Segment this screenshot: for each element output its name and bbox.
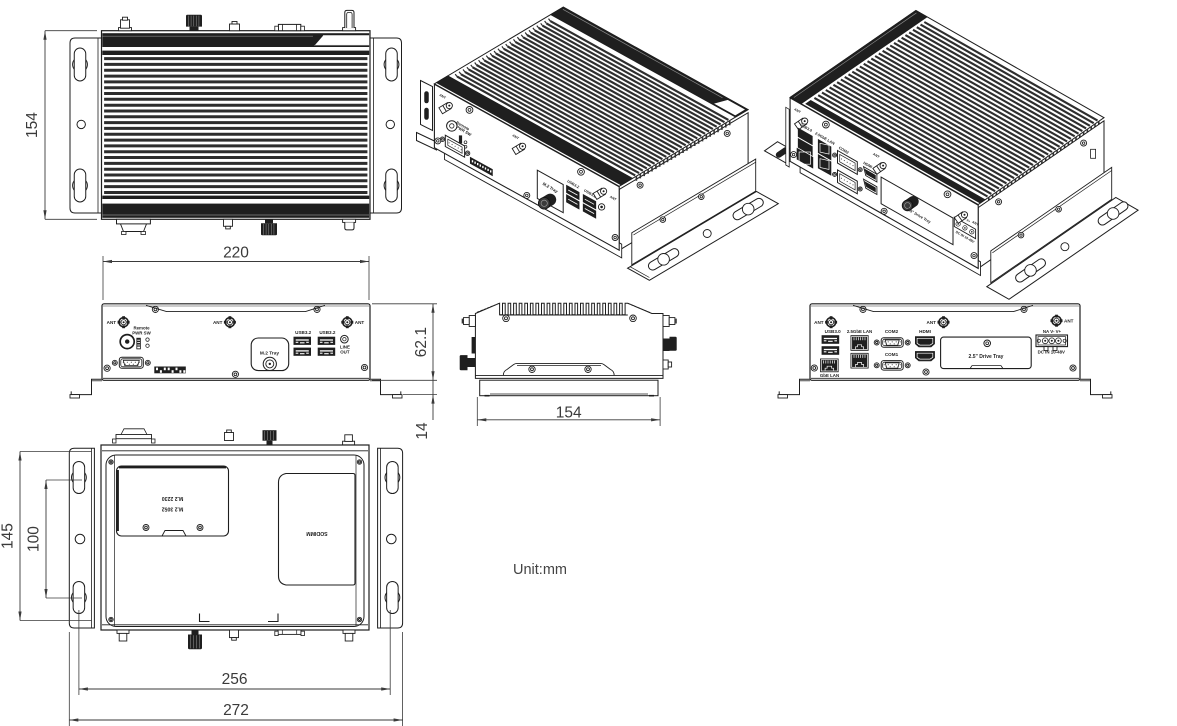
svg-text:154: 154 [24, 112, 41, 138]
svg-text:USB3.2: USB3.2 [319, 330, 336, 335]
svg-text:USB3.0: USB3.0 [825, 329, 842, 334]
svg-text:COM2: COM2 [885, 329, 899, 334]
svg-text:USB3.2: USB3.2 [295, 330, 312, 335]
svg-text:OUT: OUT [340, 350, 350, 355]
svg-text:ANT: ANT [927, 320, 937, 325]
svg-text:GbE LAN: GbE LAN [820, 373, 839, 378]
svg-text:SODIMM: SODIMM [306, 530, 327, 536]
svg-text:Unit:mm: Unit:mm [513, 562, 567, 578]
svg-text:M.2 3052: M.2 3052 [162, 506, 184, 512]
svg-text:145: 145 [0, 523, 17, 549]
svg-text:DC IN 10-48V: DC IN 10-48V [1038, 349, 1065, 354]
svg-text:14: 14 [414, 422, 431, 440]
svg-text:272: 272 [223, 702, 249, 719]
svg-text:ANT: ANT [1064, 319, 1074, 324]
svg-text:ANT: ANT [814, 320, 824, 325]
svg-text:PWR SW: PWR SW [132, 331, 151, 336]
svg-text:2.5GbE LAN: 2.5GbE LAN [847, 329, 872, 334]
svg-text:COM1: COM1 [885, 352, 899, 357]
svg-text:ANT: ANT [213, 320, 223, 325]
svg-text:154: 154 [556, 405, 582, 422]
svg-text:ANT: ANT [107, 320, 117, 325]
svg-text:HDMI: HDMI [919, 329, 931, 334]
svg-text:62.1: 62.1 [413, 327, 430, 357]
svg-text:M.2 2230: M.2 2230 [162, 495, 184, 501]
svg-text:256: 256 [222, 671, 248, 688]
svg-text:220: 220 [223, 245, 249, 262]
svg-text:ANT: ANT [355, 320, 365, 325]
svg-text:100: 100 [26, 526, 43, 552]
svg-text:2.5" Drive Tray: 2.5" Drive Tray [969, 354, 1004, 360]
svg-text:NA V- V+: NA V- V+ [1043, 329, 1062, 334]
svg-text:M.2 Tray: M.2 Tray [260, 351, 280, 357]
